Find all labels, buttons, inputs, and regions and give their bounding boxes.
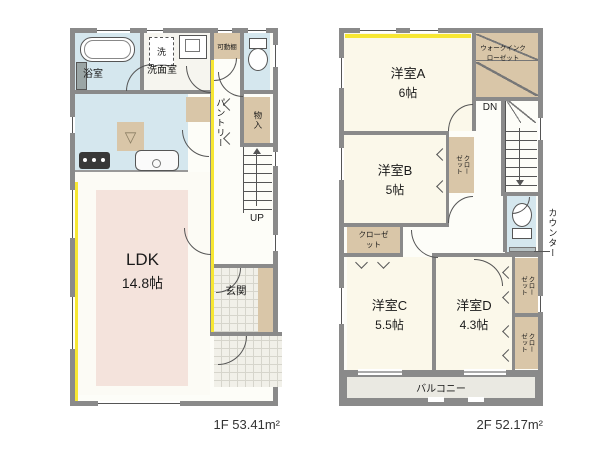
movable-shelf: 可動棚 <box>214 33 240 59</box>
window <box>360 28 396 33</box>
wall <box>505 252 538 256</box>
kitchen-cabinet <box>186 97 210 122</box>
window <box>538 296 543 312</box>
stairs-arrow-shaft <box>519 128 520 180</box>
wall <box>400 227 403 253</box>
burner-icon <box>83 158 87 162</box>
stairs-down-arrow-icon <box>516 180 524 186</box>
room-b-size: 5帖 <box>386 181 405 198</box>
kitchen-faucet-icon <box>152 159 161 168</box>
closet-hall: クローゼット <box>347 227 400 253</box>
highlight-line <box>345 34 471 38</box>
window <box>273 235 278 251</box>
floor1-area-label: 1F 53.41m² <box>120 417 280 432</box>
window <box>339 148 344 180</box>
window <box>248 28 266 33</box>
room-a-size: 6帖 <box>399 84 418 101</box>
movable-shelf-label: 可動棚 <box>217 41 237 51</box>
washroom-label: 洗面室 <box>147 61 177 76</box>
window <box>70 297 75 349</box>
bathroom-label: 浴室 <box>83 65 103 80</box>
stairs-up-label: UP <box>243 213 271 224</box>
floor2-area-label: 2F 52.17m² <box>380 417 543 432</box>
pantry-label: パントリー <box>215 98 225 170</box>
toilet-bowl-icon <box>248 48 268 71</box>
ldk-size: 14.8帖 <box>75 273 210 293</box>
closet-pole-icon <box>476 62 538 96</box>
window <box>147 28 163 33</box>
window <box>97 28 130 33</box>
room-c-label: 洋室C <box>372 295 407 314</box>
ldk-label: LDK <box>75 250 210 270</box>
fridge-glyph: ▽ <box>125 128 137 146</box>
room-a-label: 洋室A <box>391 63 426 82</box>
stairs-down-label: DN <box>477 102 503 113</box>
window <box>70 190 75 238</box>
window <box>410 28 438 33</box>
balcony-opening <box>428 397 444 402</box>
storage-label: 物入 <box>252 111 262 130</box>
wall <box>240 90 273 94</box>
wall <box>515 313 538 317</box>
closet-b: クローゼット <box>449 137 474 193</box>
room-b: 洋室B 5帖 <box>344 135 446 223</box>
room-d-size: 4.3帖 <box>460 316 489 333</box>
bathtub-inner-icon <box>84 40 131 59</box>
fridge-space-icon: ▽ <box>117 122 144 151</box>
closet-d-lower: クローゼット <box>515 317 538 369</box>
window <box>358 369 402 375</box>
shoe-cabinet <box>258 266 273 332</box>
wall <box>240 143 273 147</box>
balcony-label: バルコニー <box>416 380 466 395</box>
window <box>70 117 75 133</box>
window <box>98 401 180 406</box>
window <box>273 152 278 166</box>
room-c: 洋室C 5.5帖 <box>347 257 432 370</box>
closet-d-upper-label: クローゼット <box>519 274 534 298</box>
stove-icon <box>79 152 110 169</box>
wall <box>505 192 538 196</box>
burner-icon <box>101 158 105 162</box>
balcony: バルコニー <box>347 377 535 398</box>
stairs-up-arrow-icon <box>253 148 261 154</box>
entrance-label: 玄関 <box>214 283 258 298</box>
wall <box>446 135 449 223</box>
wall <box>476 97 538 101</box>
counter-label: カウンター <box>547 208 557 298</box>
stairs-winder-line <box>505 98 521 123</box>
balcony-opening <box>468 397 484 402</box>
stairs-arrow-shaft <box>256 154 257 206</box>
room-b-label: 洋室B <box>378 160 413 179</box>
ldk-label-block: LDK 14.8帖 <box>75 250 210 293</box>
closet-b-label: クローゼット <box>454 153 469 177</box>
walk-in-closet-label: ウォークインクローゼット <box>480 44 526 65</box>
window <box>218 28 232 33</box>
sink-basin-icon <box>185 39 200 52</box>
window <box>538 118 543 140</box>
wall <box>503 196 507 252</box>
window <box>339 58 344 88</box>
wall <box>344 253 403 257</box>
storage-monoire: 物入 <box>244 97 270 143</box>
window <box>273 45 278 67</box>
wall <box>344 223 449 227</box>
closet-d-upper: クローゼット <box>515 258 538 313</box>
burner-icon <box>92 158 96 162</box>
floor-plan-canvas: 可動棚 物入 洗 ▽ <box>0 0 600 449</box>
toilet-tank-icon <box>512 228 532 239</box>
stairs-1f <box>243 147 272 213</box>
window <box>464 369 506 375</box>
closet-hall-label: クローゼット <box>357 230 391 250</box>
window <box>339 288 344 324</box>
room-d-label: 洋室D <box>456 295 491 314</box>
closet-d-lower-label: クローゼット <box>519 331 534 355</box>
washer-label: 洗 <box>157 45 166 58</box>
room-c-size: 5.5帖 <box>375 316 404 333</box>
counter-leader-line <box>534 251 550 252</box>
wall <box>432 257 436 370</box>
wall <box>344 131 449 135</box>
